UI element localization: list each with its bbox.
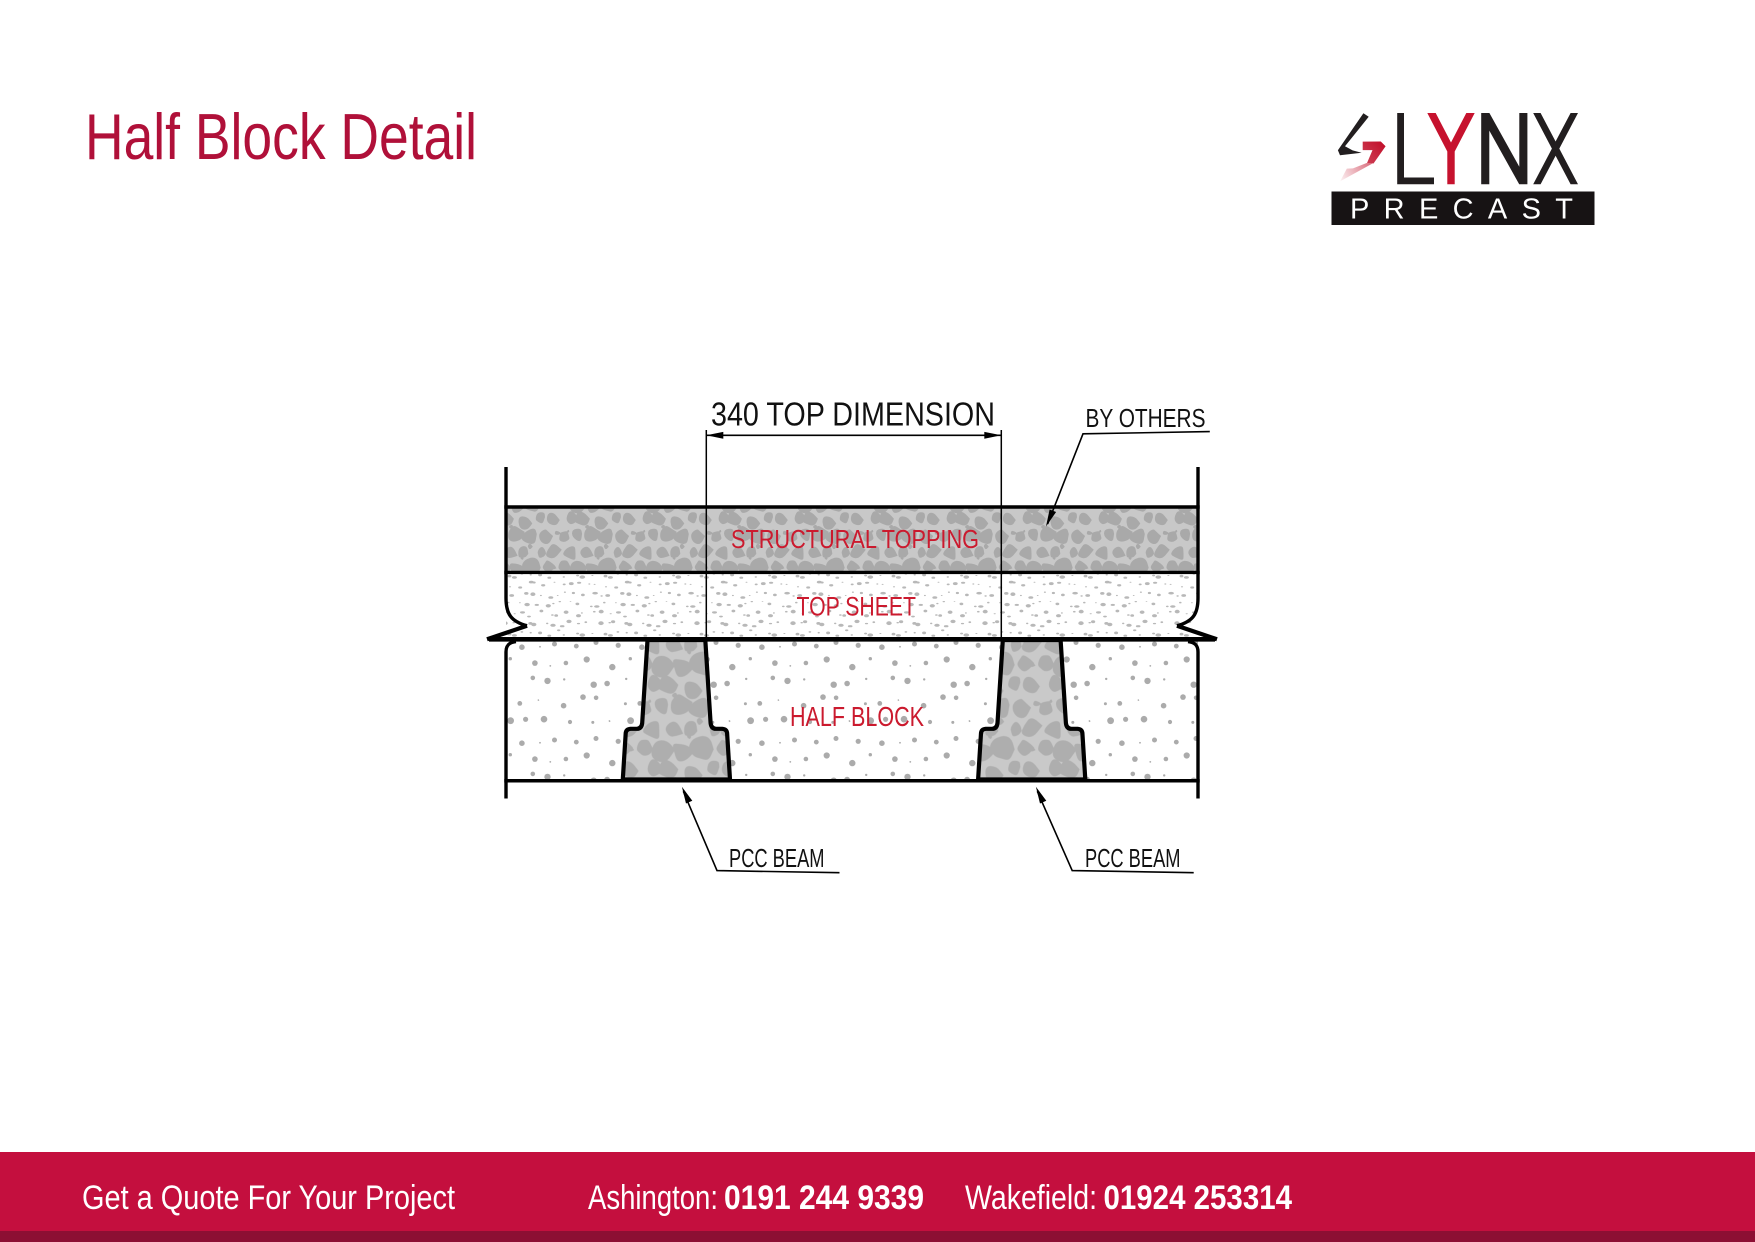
svg-text:Get a Quote For Your Project: Get a Quote For Your Project xyxy=(82,1179,455,1217)
svg-text:0191 244 9339: 0191 244 9339 xyxy=(724,1179,924,1217)
svg-text:HALF BLOCK: HALF BLOCK xyxy=(790,701,924,732)
svg-text:BY OTHERS: BY OTHERS xyxy=(1086,403,1206,433)
svg-text:PRECAST: PRECAST xyxy=(1350,194,1573,226)
svg-text:PCC BEAM: PCC BEAM xyxy=(729,843,825,873)
svg-text:PCC BEAM: PCC BEAM xyxy=(1085,843,1181,873)
svg-text:TOP SHEET: TOP SHEET xyxy=(797,592,917,622)
svg-text:Ashington:: Ashington: xyxy=(588,1179,718,1217)
svg-text:Half Block Detail: Half Block Detail xyxy=(85,101,477,173)
svg-text:STRUCTURAL TOPPING: STRUCTURAL TOPPING xyxy=(731,524,979,554)
svg-text:340 TOP DIMENSION: 340 TOP DIMENSION xyxy=(711,395,995,432)
svg-text:Wakefield:: Wakefield: xyxy=(965,1179,1097,1217)
svg-text:01924 253314: 01924 253314 xyxy=(1104,1179,1293,1217)
